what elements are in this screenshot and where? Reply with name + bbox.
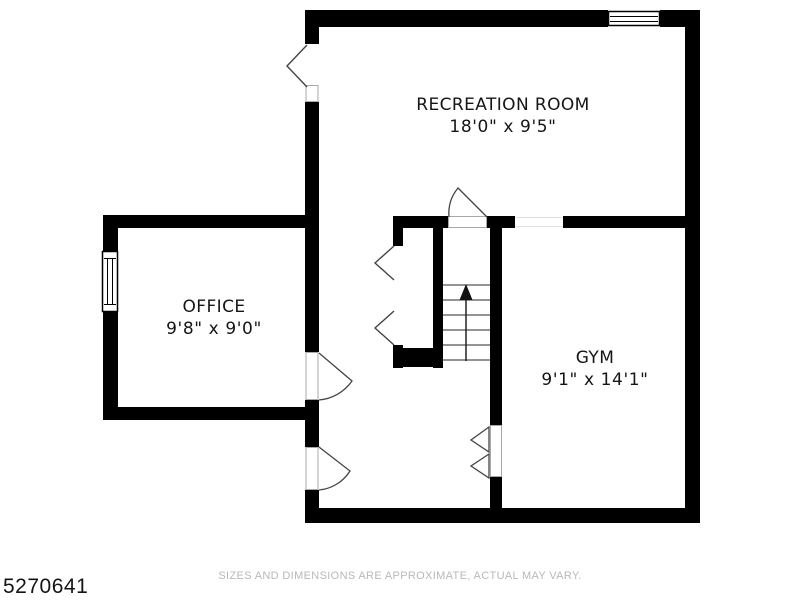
wall-segment <box>305 10 608 27</box>
disclaimer-text: SIZES AND DIMENSIONS ARE APPROXIMATE, AC… <box>100 570 700 582</box>
wall-segment <box>490 216 502 425</box>
wall-segment <box>103 215 319 228</box>
walls <box>103 10 700 523</box>
gym-bifold-door <box>471 427 489 478</box>
window-symbol-recreation <box>609 12 660 26</box>
wall-segment <box>305 508 700 523</box>
room-dimensions: 18'0" x 9'5" <box>303 116 703 138</box>
chevron-door-recreation-left <box>287 45 307 87</box>
wall-opening <box>515 218 563 227</box>
room-name: OFFICE <box>64 296 364 318</box>
room-name: GYM <box>445 347 745 369</box>
room-dimensions: 9'8" x 9'0" <box>64 318 364 340</box>
wall-segment <box>685 10 700 523</box>
wall-segment <box>103 407 319 420</box>
door-leaf <box>306 353 318 400</box>
door-leaf <box>449 217 487 228</box>
door-jambs <box>306 86 502 490</box>
wall-segment <box>563 216 700 228</box>
room-label-gym: GYM 9'1" x 14'1" <box>445 347 745 391</box>
wall-segment <box>393 216 403 246</box>
door-swing-stairs-top <box>449 188 487 217</box>
closet-bifold-doors <box>375 246 394 345</box>
wall-segment <box>490 477 502 523</box>
wall-segment <box>103 215 118 253</box>
stairs-direction-arrow-head <box>460 284 473 300</box>
listing-id: 5270641 <box>3 575 88 599</box>
room-label-recreation-room: RECREATION ROOM 18'0" x 9'5" <box>303 94 703 138</box>
room-label-office: OFFICE 9'8" x 9'0" <box>64 296 364 340</box>
floorplan-image: RECREATION ROOM 18'0" x 9'5" OFFICE 9'8"… <box>0 0 800 600</box>
door-swing-hall <box>319 447 350 490</box>
door-leaf <box>491 426 502 477</box>
door-swing-office <box>319 353 352 400</box>
room-name: RECREATION ROOM <box>303 94 703 116</box>
wall-segment <box>305 400 319 447</box>
room-dimensions: 9'1" x 14'1" <box>445 369 745 391</box>
door-leaf <box>306 448 318 490</box>
wall-segment <box>433 216 443 368</box>
